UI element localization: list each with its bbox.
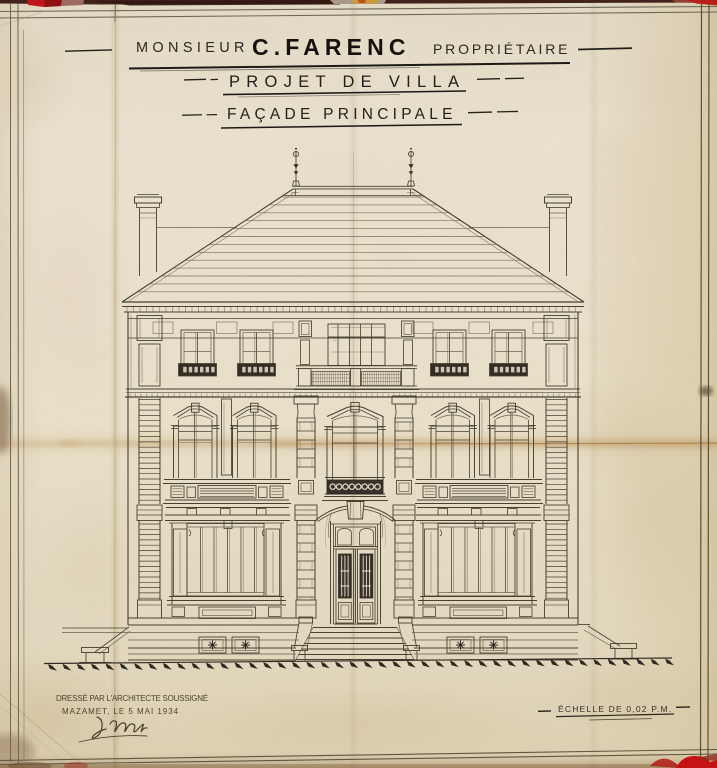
svg-text:MONSIEUR: MONSIEUR xyxy=(136,40,246,56)
svg-text:DRESSÉ PAR L'ARCHITECTE SOUSSI: DRESSÉ PAR L'ARCHITECTE SOUSSIGNÉ xyxy=(56,694,209,703)
svg-text:PROJET DE VILLA: PROJET DE VILLA xyxy=(229,73,461,91)
svg-text:C.FARENC: C.FARENC xyxy=(252,34,408,60)
svg-text:ÉCHELLE DE 0,02 P.M.: ÉCHELLE DE 0,02 P.M. xyxy=(558,704,672,714)
svg-text:MAZAMET, LE 5 MAI 1934: MAZAMET, LE 5 MAI 1934 xyxy=(62,707,179,716)
svg-text:PROPRIÉTAIRE: PROPRIÉTAIRE xyxy=(433,41,568,57)
svg-text:FAÇADE PRINCIPALE: FAÇADE PRINCIPALE xyxy=(227,106,454,123)
